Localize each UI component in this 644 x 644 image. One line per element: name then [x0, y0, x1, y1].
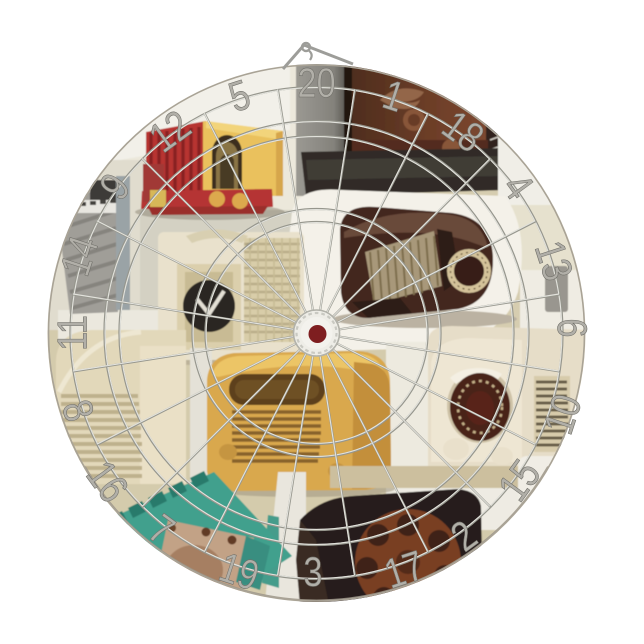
svg-text:11: 11: [49, 315, 96, 351]
svg-text:6: 6: [548, 318, 595, 337]
svg-text:3: 3: [303, 549, 322, 596]
svg-text:20: 20: [297, 60, 335, 107]
